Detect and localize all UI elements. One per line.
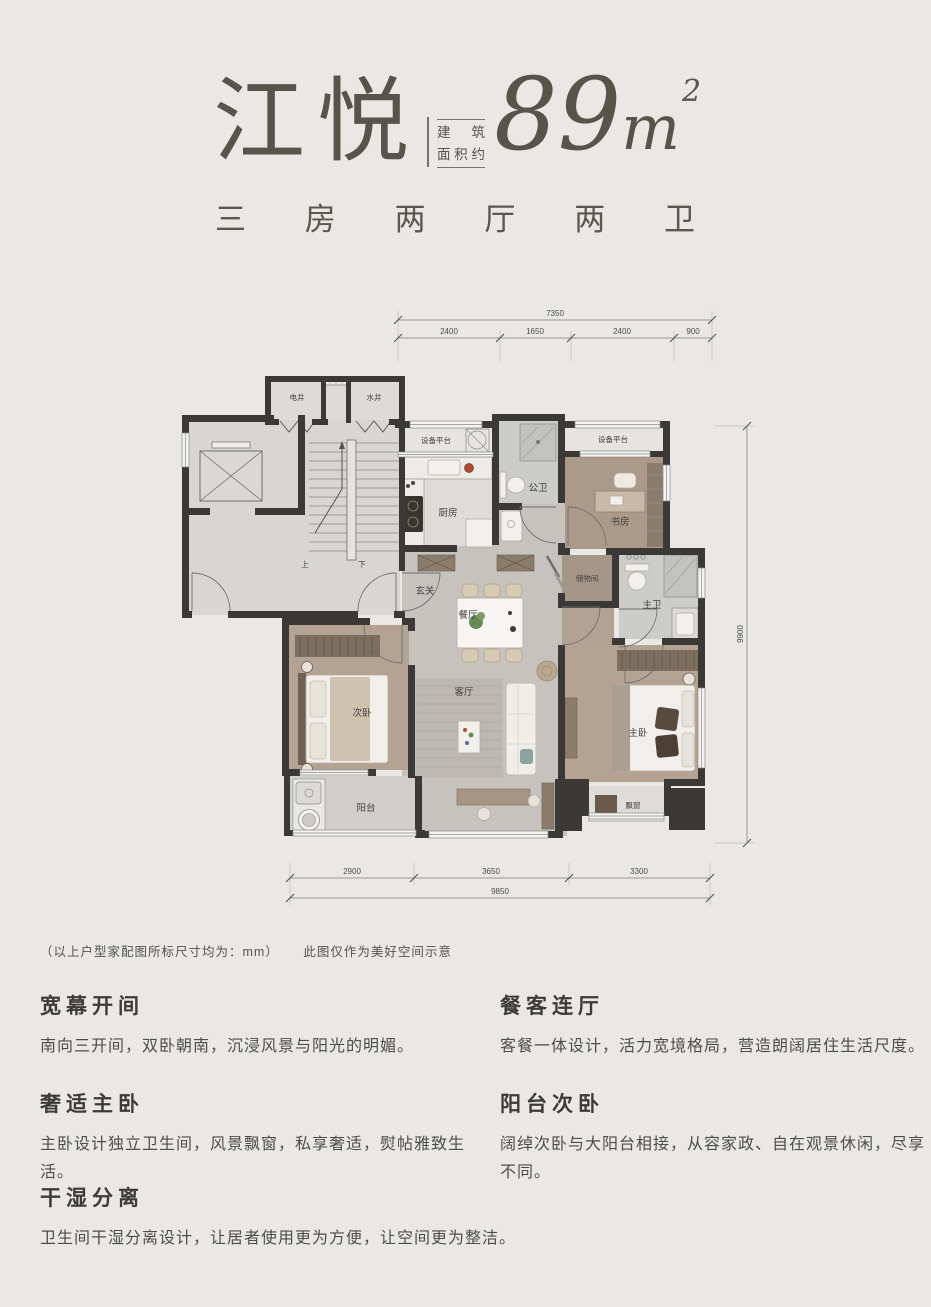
dim-right-total: 9900 [736,625,745,643]
page-title: 江悦 [213,76,421,168]
dim-bottom-seg2: 3650 [482,867,500,876]
balcony-label: 阳台 [356,802,375,814]
feature-title: 餐客连厅 [500,990,931,1020]
feature-body: 南向三开间，双卧朝南，沉浸风景与阳光的明媚。 [40,1033,500,1061]
bay-window-label: 飘窗 [626,800,641,810]
second-bedroom-label: 次卧 [352,707,372,719]
public-bath-label: 公卫 [528,483,548,494]
stairs-up-label: 上 [301,560,309,569]
area-exponent: 2 [682,74,701,109]
feature-master-suite: 奢适主卧 主卧设计独立卫生间，风景飘窗，私享奢适，熨帖雅致生活。 [40,1088,465,1188]
dining-label: 餐厅 [458,609,478,621]
dim-top-seg3: 2400 [613,327,631,336]
feature-body: 阔绰次卧与大阳台相接，从容家政、自在观景休闲，尽享不同。 [500,1131,925,1188]
elec-shaft-label: 电井 [290,392,305,402]
type-char: 卫 [664,194,695,239]
dim-bottom-seg1: 2900 [343,867,361,876]
area-value: 89m2 [494,60,699,170]
master-bedroom-label: 主卧 [628,727,648,739]
dimension-bottom: 2900 3650 3300 9850 [286,863,714,905]
dimension-right: 9900 [715,422,755,847]
elevator [200,442,262,501]
poster: 江悦 建筑 面积约 89m2 三 房 两 厅 两 卫 [0,0,931,1307]
footnote-note2: 此图仅作为美好空间示意 [303,945,452,959]
stairs-down-label: 下 [358,560,366,569]
area-unit: m [621,91,680,164]
type-char: 两 [395,194,426,239]
feature-wet-dry: 干湿分离 卫生间干湿分离设计，让居者使用更为方便，让空间更为整洁。 [40,1182,540,1253]
floor-plan: 上 下 电井 水井 [170,293,780,938]
master-bath-label: 主卫 [642,599,662,611]
living-label: 客厅 [454,686,474,698]
foyer-label: 玄关 [415,585,435,597]
type-char: 厅 [484,194,515,239]
type-char: 三 [215,194,246,239]
feature-body: 主卧设计独立卫生间，风景飘窗，私享奢适，熨帖雅致生活。 [40,1131,465,1188]
feature-body: 卫生间干湿分离设计，让居者使用更为方便，让空间更为整洁。 [40,1225,540,1253]
feature-title: 干湿分离 [40,1182,540,1212]
second-bedroom-furniture [295,635,388,775]
equip-platform-left-label: 设备平台 [421,435,451,445]
feature-wide-bays: 宽幕开间 南向三开间，双卧朝南，沉浸风景与阳光的明媚。 [40,990,500,1061]
study-label: 书房 [610,516,629,528]
feature-title: 宽幕开间 [40,990,500,1020]
dining-furniture [457,584,523,662]
title-divider [427,117,429,167]
storage-label: 储物间 [576,573,599,583]
floor-plan-svg: 上 下 电井 水井 [170,293,780,938]
area-label-line1: 建筑 [437,122,485,144]
type-char: 两 [574,194,605,239]
footnote: （以上户型家配图所标尺寸均为：mm） 此图仅作为美好空间示意 [40,941,452,960]
equip-platform-right-label: 设备平台 [598,434,628,444]
kitchen-label: 厨房 [438,507,457,519]
dimension-top: 7350 2400 1650 2400 900 [394,309,716,361]
footnote-note1: （以上户型家配图所标尺寸均为：mm） [40,945,279,959]
area-label: 建筑 面积约 [437,119,485,168]
area-number: 89 [494,56,621,173]
area-label-line2: 面积约 [437,144,485,166]
feature-body: 客餐一体设计，活力宽境格局，营造朗阔居住生活尺度。 [500,1033,931,1061]
layout-type: 三 房 两 厅 两 卫 [215,194,695,239]
dim-bottom-seg3: 3300 [630,867,648,876]
feature-balcony-bedroom: 阳台次卧 阔绰次卧与大阳台相接，从容家政、自在观景休闲，尽享不同。 [500,1088,925,1188]
feature-title: 阳台次卧 [500,1088,925,1118]
feature-dining-living: 餐客连厅 客餐一体设计，活力宽境格局，营造朗阔居住生活尺度。 [500,990,931,1061]
water-shaft-label: 水井 [367,392,382,402]
balcony-furniture [293,779,325,833]
dim-top-seg4: 900 [686,327,700,336]
dim-bottom-total: 9850 [491,887,509,896]
dim-top-seg1: 2400 [440,327,458,336]
dim-top-seg2: 1650 [526,327,544,336]
dim-top-total: 7350 [546,309,564,318]
type-char: 房 [305,194,336,239]
feature-title: 奢适主卧 [40,1088,465,1118]
